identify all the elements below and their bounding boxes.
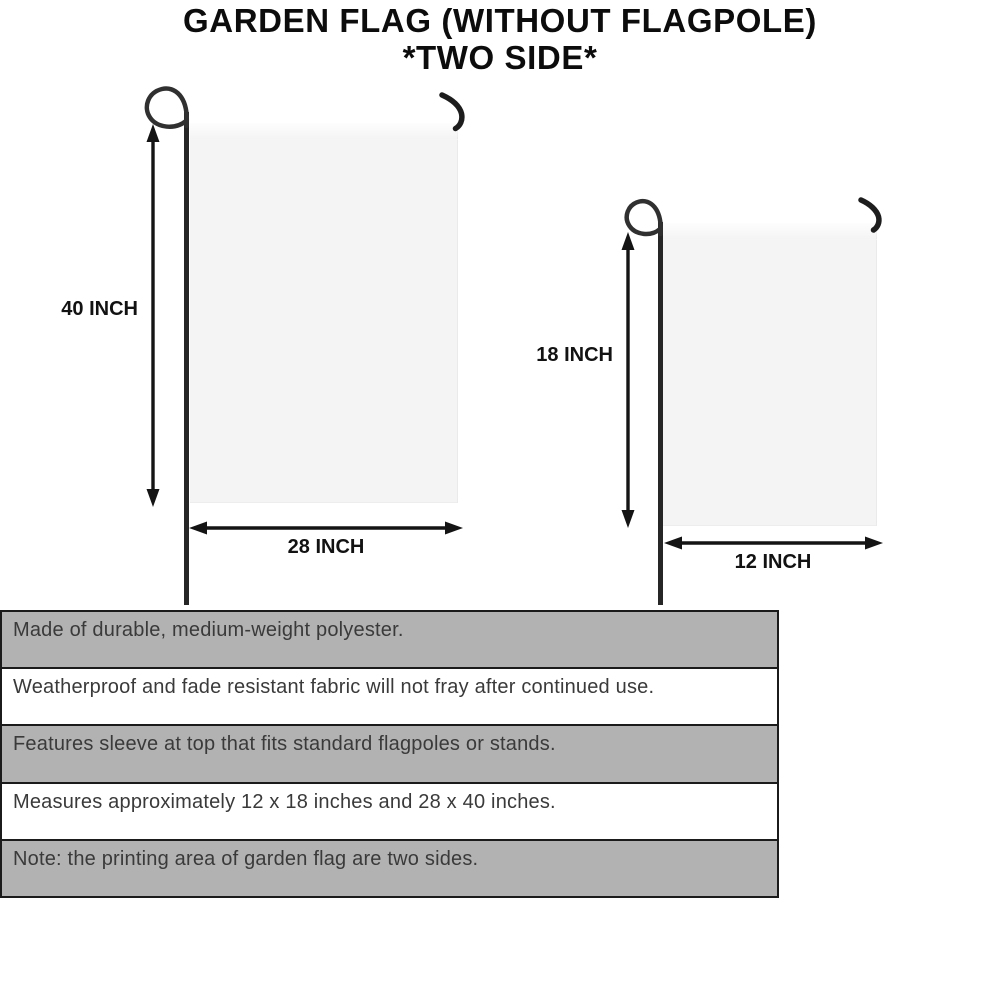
small-flag-pole-loop-icon [627, 201, 661, 234]
small-flag-height-arrow [622, 232, 635, 528]
spec-row-text: Features sleeve at top that fits standar… [13, 733, 556, 755]
spec-row-text: Note: the printing area of garden flag a… [13, 848, 478, 870]
spec-row-measures: Measures approximately 12 x 18 inches an… [2, 784, 777, 841]
large-flag-canvas [190, 123, 458, 503]
large-flag-width-arrow [189, 522, 463, 535]
spec-row-note: Note: the printing area of garden flag a… [2, 841, 777, 896]
spec-row-text: Weatherproof and fade resistant fabric w… [13, 676, 654, 698]
large-flag-width-label: 28 INCH [226, 536, 426, 559]
large-flag-height-label: 40 INCH [38, 298, 138, 321]
spec-row-text: Made of durable, medium-weight polyester… [13, 619, 404, 641]
small-flag-width-label: 12 INCH [673, 551, 873, 574]
small-flag-canvas [663, 223, 877, 526]
spec-row-sleeve: Features sleeve at top that fits standar… [2, 726, 777, 783]
large-flag-pole-loop-icon [147, 88, 187, 126]
small-flag-pole [627, 201, 661, 605]
large-flag-pole [147, 88, 187, 605]
small-flag-sleeve [663, 223, 877, 240]
spec-list: Made of durable, medium-weight polyester… [0, 610, 779, 898]
spec-row-text: Measures approximately 12 x 18 inches an… [13, 791, 556, 813]
large-flag-height-arrow [147, 124, 160, 507]
size-diagram: 40 INCH 28 INCH 18 INCH 12 INCH [0, 0, 1000, 620]
spec-row-material: Made of durable, medium-weight polyester… [2, 612, 777, 669]
large-flag-sleeve [190, 123, 458, 140]
small-flag-width-arrow [664, 537, 883, 550]
spec-row-weatherproof: Weatherproof and fade resistant fabric w… [2, 669, 777, 726]
small-flag-height-label: 18 INCH [513, 344, 613, 367]
